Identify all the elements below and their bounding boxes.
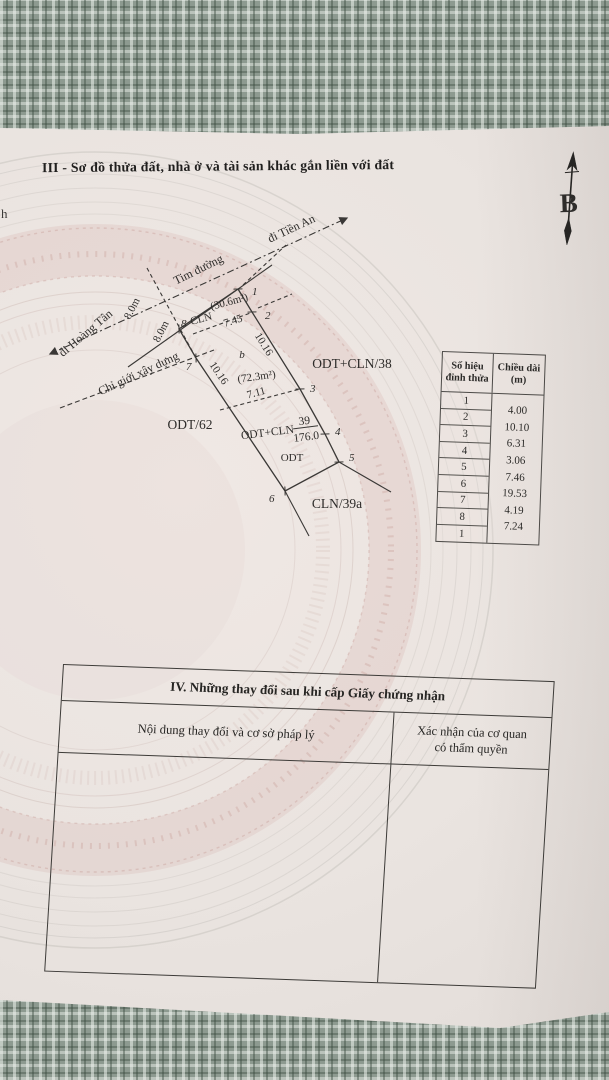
- certificate-paper: III - Sơ đồ thửa đất, nhà ở và tài sản k…: [0, 0, 609, 1080]
- direction-sw-label: đi Hoàng Tân: [56, 306, 115, 359]
- section4-col2-header-line1: Xác nhận của cơ quan: [417, 723, 528, 742]
- edge-length-cell: 7.46: [489, 469, 540, 486]
- neighbor-east-label: ODT+CLN/38: [312, 356, 392, 371]
- witness-dash-vertex1: [243, 245, 286, 285]
- edge-length-cell: 10.10: [491, 419, 542, 436]
- inner-use-bottom-label: ODT: [281, 452, 304, 464]
- section4-body-col2: [378, 765, 548, 988]
- edge-length-cell: 7.24: [488, 519, 539, 536]
- inner-use-top-label: CLN: [189, 310, 213, 327]
- vertex-label-7: 7: [186, 361, 192, 373]
- neighbor-west-label: ODT/62: [168, 417, 213, 432]
- vertex-length-table-body: 1 2 3 4 5 6 7 8 1 4.00 10.10 6.31 3.06 7…: [436, 392, 543, 545]
- vertex-id-cell: 1: [441, 392, 492, 410]
- section4-col2-header: Xác nhận của cơ quan có thẩm quyền: [392, 713, 552, 769]
- vertex-length-table-header: Số hiệu đỉnh thửa Chiều dài (m): [442, 352, 545, 396]
- vertex-id-cell: 4: [439, 442, 490, 460]
- vertex-label-2: 2: [265, 310, 271, 322]
- north-arrow: B: [548, 150, 592, 254]
- neighbor-boundary-southeast: [339, 462, 391, 492]
- witness-dash-vertex2: [258, 294, 292, 308]
- vertex-label-3: 3: [309, 383, 316, 395]
- col-header-vertex: Số hiệu đỉnh thửa: [442, 352, 494, 393]
- dim-745-label: 7.45: [222, 312, 244, 330]
- edge-length-cell: 4.19: [488, 502, 539, 519]
- parcel-use-label: ODT+CLN: [240, 424, 295, 442]
- col-header-vertex-line2: đỉnh thửa: [445, 372, 488, 385]
- col-header-length: Chiều dài (m): [493, 354, 545, 395]
- vertex-id-cell: 6: [438, 475, 489, 493]
- road-offset-1-label: 8.0m: [122, 296, 143, 322]
- vertex-id-cell: 2: [440, 409, 491, 427]
- inner-area-mid-label: (72.3m²): [237, 368, 277, 385]
- vertex-label-8: 8: [181, 318, 187, 330]
- north-letter: B: [559, 188, 578, 219]
- edge-length-column: 4.00 10.10 6.31 3.06 7.46 19.53 4.19 7.2…: [487, 394, 543, 545]
- col-header-length-line2: (m): [511, 374, 527, 386]
- north-arrow-fletch-icon: [563, 218, 572, 245]
- vertex-length-table: Số hiệu đỉnh thửa Chiều dài (m) 1 2 3 4 …: [435, 351, 546, 546]
- edge-length-cell: 4.00: [492, 403, 543, 420]
- road-offset-2-label: 8.0m: [151, 319, 172, 345]
- vertex-id-cell: 7: [438, 492, 489, 510]
- parcel-id-group: ODT+CLN 39 176.0: [240, 414, 321, 451]
- parcel-number: 39: [298, 415, 311, 428]
- photo-of-land-certificate: { "document": { "section3_title": "III -…: [0, 0, 609, 1080]
- vertex-id-cell: 3: [440, 425, 491, 443]
- neighbor-south-label: CLN/39a: [312, 496, 362, 511]
- parcel-area: 176.0: [293, 430, 320, 445]
- section4-table: IV. Những thay đổi sau khi cấp Giấy chứn…: [44, 664, 555, 989]
- direction-ne-label: đi Tiền An: [265, 211, 317, 245]
- neighbor-boundary-south: [285, 491, 309, 536]
- dim-1016-left-label: 10.16: [207, 360, 231, 388]
- setback-label: Chỉ giới xây dựng: [96, 349, 181, 399]
- inner-zone-mid-label: b: [239, 349, 245, 361]
- vertex-label-4: 4: [335, 426, 341, 438]
- vertex-label-6: 6: [269, 493, 275, 505]
- vertex-id-cell: 5: [439, 458, 490, 476]
- edge-length-cell: 3.06: [490, 453, 541, 470]
- vertex-id-cell: 8: [437, 508, 488, 526]
- vertex-id-cell: 1: [436, 525, 487, 543]
- section4-col2-header-line2: có thẩm quyền: [434, 740, 508, 758]
- section4-body: [45, 753, 548, 988]
- col-header-length-line1: Chiều dài: [497, 362, 540, 375]
- edge-length-cell: 19.53: [489, 486, 540, 503]
- section4-body-col1: [45, 753, 391, 982]
- vertex-id-column: 1 2 3 4 5 6 7 8 1: [436, 392, 492, 543]
- vertex-label-5: 5: [349, 452, 355, 464]
- edge-length-cell: 6.31: [491, 436, 542, 453]
- centerline-label: Tim đường: [171, 251, 225, 287]
- cadastral-sketch: Tim đường đi Tiền An đi Hoàng Tân Chỉ gi…: [0, 200, 460, 545]
- vertex-label-1: 1: [252, 286, 258, 298]
